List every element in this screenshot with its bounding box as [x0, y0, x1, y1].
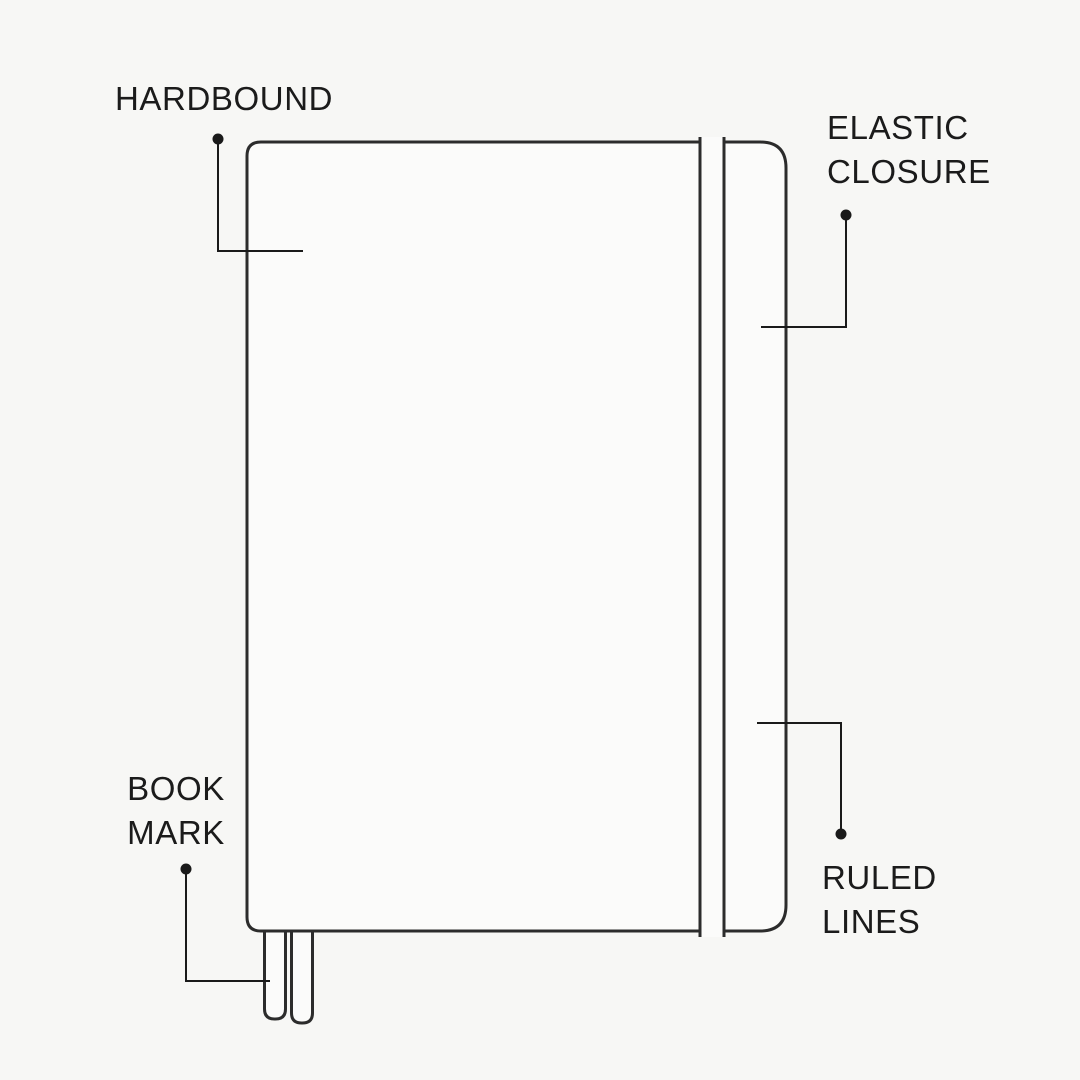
label-elastic-closure: ELASTIC CLOSURE — [827, 106, 991, 194]
label-hardbound-text: HARDBOUND — [115, 77, 333, 121]
elastic-closure-leader-dot — [841, 210, 852, 221]
label-ruled-lines-line2: LINES — [822, 900, 937, 944]
label-book-mark-line2: MARK — [96, 811, 256, 855]
bookmark-ribbon-right — [292, 922, 313, 1023]
bookmark-ribbon-left — [265, 922, 286, 1019]
label-book-mark-line1: BOOK — [96, 767, 256, 811]
label-hardbound: HARDBOUND — [115, 77, 333, 121]
label-ruled-lines: RULED LINES — [822, 856, 937, 944]
elastic-band-fill — [699, 137, 726, 937]
diagram-canvas: HARDBOUND ELASTIC CLOSURE BOOK MARK RULE… — [0, 0, 1080, 1080]
label-ruled-lines-line1: RULED — [822, 856, 937, 900]
hardbound-leader-dot — [213, 134, 224, 145]
bookmark-ribbons — [265, 922, 313, 1023]
elastic-band — [699, 137, 726, 937]
ruled-lines-leader-dot — [836, 829, 847, 840]
label-book-mark: BOOK MARK — [96, 767, 256, 855]
book-mark-leader-dot — [181, 864, 192, 875]
label-elastic-closure-line2: CLOSURE — [827, 150, 991, 194]
label-elastic-closure-line1: ELASTIC — [827, 106, 991, 150]
